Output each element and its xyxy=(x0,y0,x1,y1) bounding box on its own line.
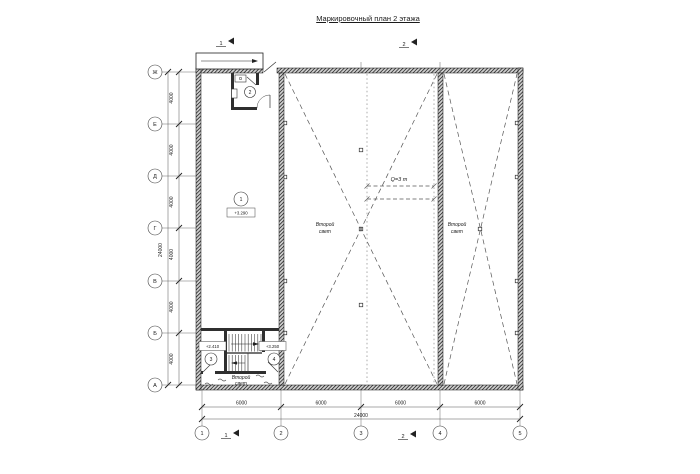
wall-axis4 xyxy=(438,73,443,385)
section-flag-icon xyxy=(228,38,234,45)
wall-lower-top xyxy=(201,328,279,331)
second-light-label: Второй xyxy=(316,221,335,228)
crane-capacity-label: Q=3 т xyxy=(391,177,408,183)
dim-row: 4000 xyxy=(169,92,175,103)
wall-wc-bottom xyxy=(231,107,257,110)
room-4-number: 4 xyxy=(273,357,276,363)
section-mark-2-top: 2 xyxy=(399,39,417,49)
hall-markings: Q=3 т Второй свет Второй свет xyxy=(285,74,517,384)
floor-plan-svg: Q=3 т Второй свет Второй свет xyxy=(0,0,700,474)
dim-col-total: 24000 xyxy=(354,413,368,419)
section-flag-icon xyxy=(233,430,239,437)
second-light-label: свет xyxy=(235,381,247,387)
door-swing-wc xyxy=(257,95,270,108)
section-number: 1 xyxy=(219,41,222,47)
grid-row-label: Г xyxy=(154,226,157,232)
embed-marker-square xyxy=(359,148,363,152)
wall-axis2 xyxy=(279,73,284,385)
wall-right xyxy=(518,68,523,390)
second-light-label: свет xyxy=(319,229,331,235)
wall-top-right xyxy=(277,68,523,73)
dim-row-total: 24000 xyxy=(158,243,164,257)
dim-col: 6000 xyxy=(474,401,485,407)
wall-strip-stub xyxy=(201,371,203,374)
dim-col: 6000 xyxy=(395,401,406,407)
room-1-elevation: +3.290 xyxy=(234,211,248,216)
squiggle xyxy=(256,375,264,377)
grid-col-label: 3 xyxy=(359,431,362,437)
dimension-ticks xyxy=(165,69,523,422)
drawing-canvas: Маркировочный план 2 этажа xyxy=(0,0,700,474)
stair-arrowhead-upper xyxy=(253,342,259,346)
door-leaf-stair xyxy=(264,62,276,72)
room-3-number: 3 xyxy=(210,357,213,363)
second-light-label: свет xyxy=(451,229,463,235)
door-leaf-wc-inner xyxy=(247,77,256,85)
sink-fixture xyxy=(235,75,246,82)
grid-col-label: 2 xyxy=(279,431,282,437)
wall-stair-left xyxy=(224,331,227,372)
section-number: 1 xyxy=(224,433,227,439)
wall-wc-divider xyxy=(256,73,259,85)
dim-row: 4000 xyxy=(169,301,175,312)
dim-col: 6000 xyxy=(315,401,326,407)
embed-marker-square xyxy=(359,303,363,307)
grid-row-label: Д xyxy=(153,174,157,180)
grid-row-label: А xyxy=(153,383,157,389)
grid-row-label: Е xyxy=(153,122,157,128)
room-1-number: 1 xyxy=(240,197,243,203)
grid-row-label: Ж xyxy=(152,70,157,76)
section-number: 2 xyxy=(401,434,404,440)
section-mark-1-top: 1 xyxy=(216,38,234,48)
dim-row: 4000 xyxy=(169,249,175,260)
room-4-elevation: +3.250 xyxy=(266,344,280,349)
section-flag-icon xyxy=(411,39,417,46)
second-light-label: Второй xyxy=(448,221,467,228)
section-mark-1-bottom: 1 xyxy=(221,430,239,440)
grid-col-label: 4 xyxy=(438,431,441,437)
squiggle xyxy=(205,383,213,385)
room-2-number: 2 xyxy=(249,90,252,96)
room-marks: 1 +3.290 2 +2.410 3 +3.250 4 Второй свет xyxy=(199,87,286,388)
room-3-elevation: +2.410 xyxy=(206,344,220,349)
section-number: 2 xyxy=(402,42,405,48)
grid-col-label: 5 xyxy=(518,431,521,437)
squiggle xyxy=(264,382,272,384)
section-flag-icon xyxy=(410,431,416,438)
toilet-fixture xyxy=(232,89,238,98)
dimension-system: 4000 4000 4000 4000 4000 4000 24000 6000… xyxy=(148,62,527,440)
squiggle xyxy=(218,379,226,381)
grid-row-label: Б xyxy=(153,331,157,337)
grid-row-label: В xyxy=(153,279,157,285)
second-light-label: Второй xyxy=(232,374,251,381)
stair-arrowhead-lower xyxy=(231,361,237,364)
dim-row: 4000 xyxy=(169,144,175,155)
grid-col-label: 1 xyxy=(200,431,203,437)
section-mark-2-bottom: 2 xyxy=(398,431,416,441)
dim-row: 4000 xyxy=(169,196,175,207)
dim-col: 6000 xyxy=(236,401,247,407)
wall-strip xyxy=(215,371,266,374)
dim-row: 4000 xyxy=(169,353,175,364)
